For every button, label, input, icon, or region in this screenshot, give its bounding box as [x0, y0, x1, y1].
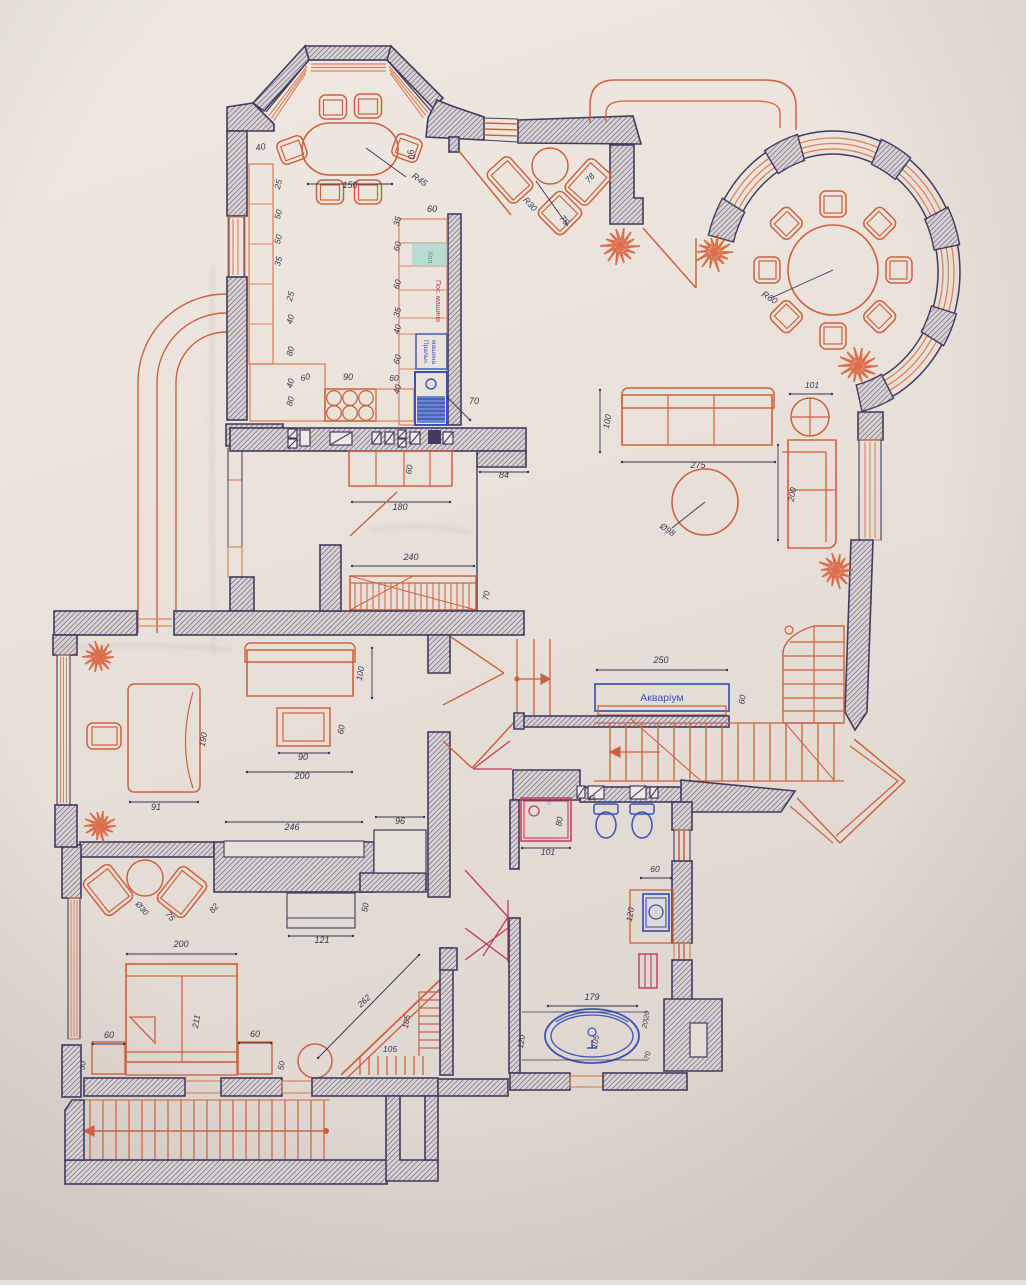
- svg-text:60: 60: [389, 373, 399, 383]
- svg-text:91: 91: [151, 802, 161, 812]
- svg-text:121: 121: [314, 935, 329, 945]
- svg-text:150: 150: [342, 180, 357, 190]
- svg-text:60: 60: [736, 694, 748, 705]
- svg-text:Пральн.: Пральн.: [422, 340, 429, 365]
- svg-text:машина: машина: [434, 296, 441, 322]
- svg-text:70: 70: [480, 590, 492, 601]
- svg-text:80: 80: [553, 816, 565, 827]
- svg-text:240: 240: [402, 552, 418, 562]
- svg-text:60: 60: [104, 1030, 114, 1040]
- svg-text:101: 101: [805, 380, 819, 390]
- svg-text:60: 60: [650, 864, 660, 874]
- svg-text:179: 179: [584, 992, 599, 1002]
- svg-text:15: 15: [588, 795, 596, 802]
- svg-text:90: 90: [405, 149, 417, 161]
- svg-text:60: 60: [250, 1029, 260, 1039]
- svg-text:Акваріум: Акваріум: [640, 692, 683, 704]
- svg-text:101: 101: [541, 847, 555, 857]
- svg-text:246: 246: [283, 822, 299, 832]
- svg-text:90: 90: [298, 752, 308, 762]
- svg-text:105: 105: [383, 1044, 397, 1054]
- svg-text:84: 84: [499, 470, 509, 480]
- svg-text:200: 200: [172, 939, 188, 949]
- svg-text:60: 60: [427, 204, 437, 214]
- svg-text:180: 180: [392, 502, 407, 512]
- svg-text:96: 96: [395, 816, 405, 826]
- svg-text:70: 70: [469, 396, 479, 406]
- svg-text:машина: машина: [430, 340, 437, 365]
- svg-text:250: 250: [652, 655, 668, 665]
- svg-text:Хол.: Хол.: [426, 251, 433, 265]
- svg-text:40: 40: [255, 141, 267, 153]
- svg-text:Пос.: Пос.: [434, 280, 441, 294]
- svg-text:90: 90: [343, 372, 353, 382]
- svg-text:60: 60: [403, 464, 415, 475]
- svg-text:200: 200: [293, 771, 309, 781]
- svg-text:50: 50: [359, 902, 371, 913]
- svg-text:60: 60: [335, 724, 347, 735]
- svg-text:☃: ☃: [545, 798, 552, 807]
